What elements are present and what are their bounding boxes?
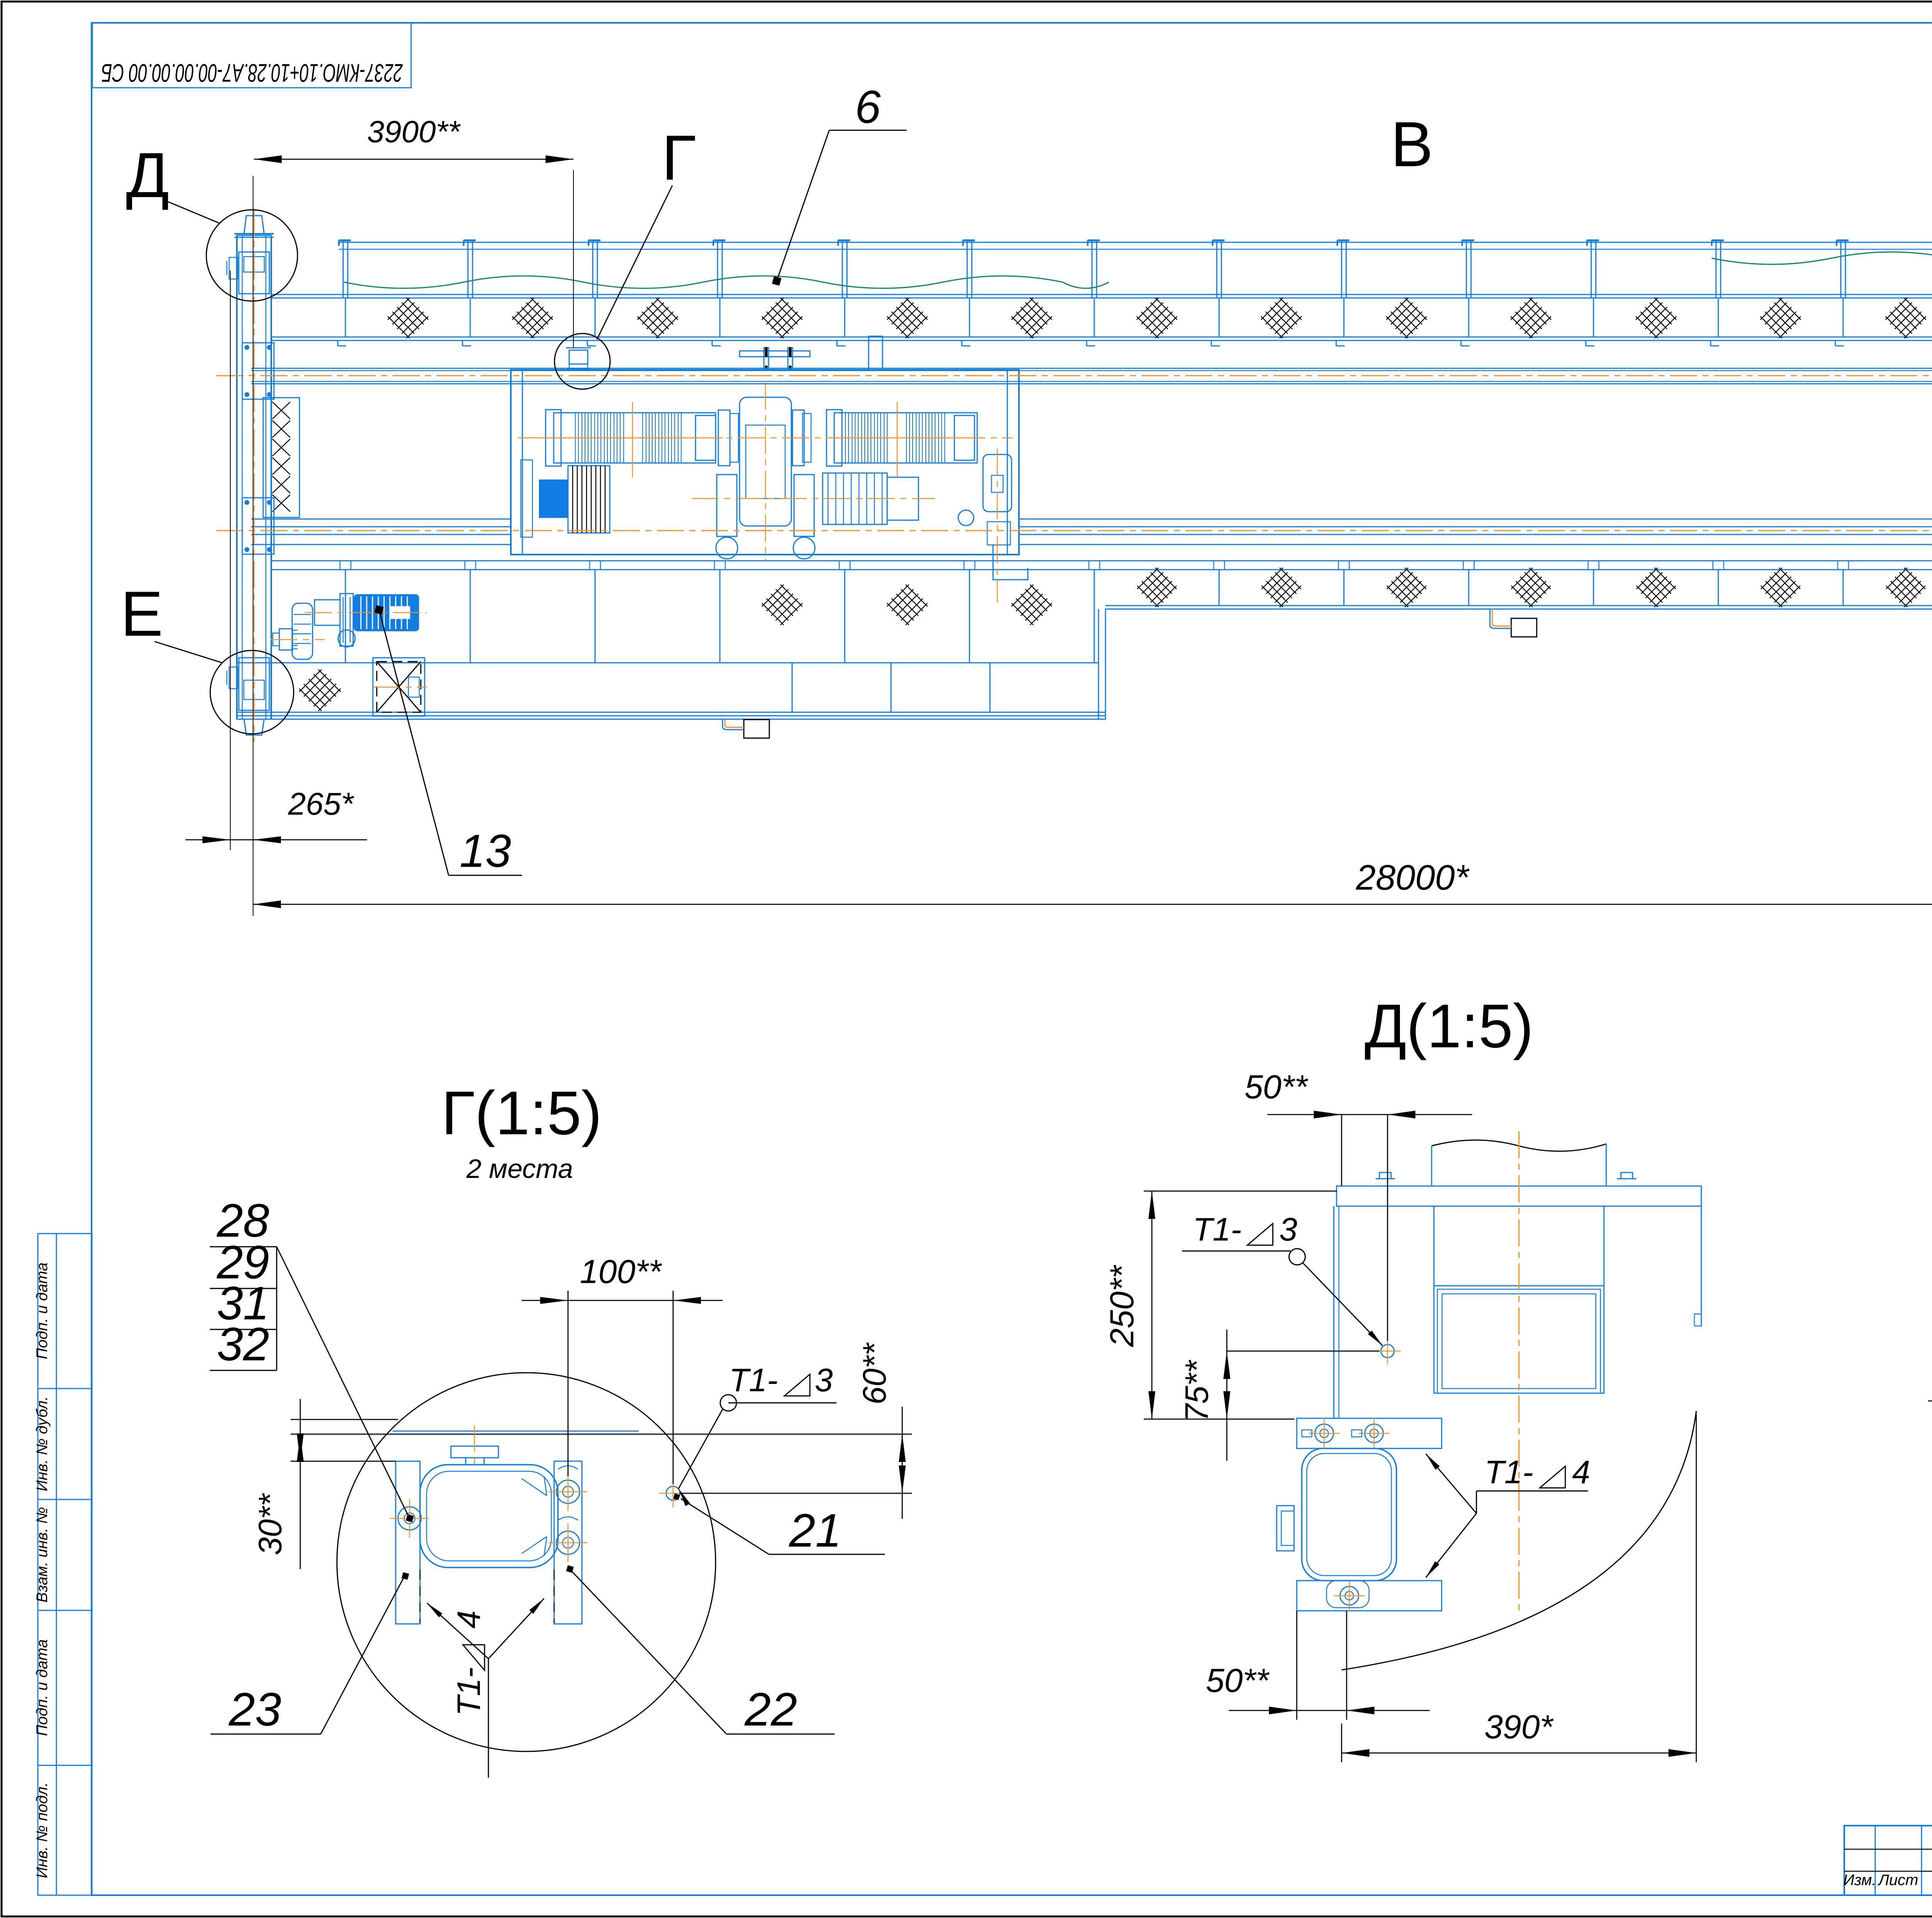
svg-text:Г(1:5): Г(1:5) — [441, 1078, 602, 1147]
svg-text:22: 22 — [744, 1683, 797, 1736]
svg-text:265*: 265* — [288, 786, 355, 822]
svg-text:2 места: 2 места — [466, 1154, 573, 1184]
svg-text:3: 3 — [1279, 1211, 1298, 1247]
svg-text:60**: 60** — [856, 1342, 893, 1404]
svg-text:Г: Г — [662, 122, 696, 193]
svg-text:Взам. инв. №: Взам. инв. № — [34, 1507, 51, 1602]
svg-text:Т1-: Т1- — [729, 1362, 778, 1398]
svg-text:28000*: 28000* — [1355, 858, 1470, 897]
svg-text:Изм.: Изм. — [1843, 1872, 1876, 1889]
svg-text:Д(1:5): Д(1:5) — [1364, 991, 1533, 1060]
svg-text:Подп. и дата: Подп. и дата — [34, 1639, 51, 1736]
svg-text:Т1-: Т1- — [451, 1667, 487, 1716]
svg-text:50**: 50** — [1206, 1662, 1270, 1699]
svg-text:100**: 100** — [580, 1253, 662, 1290]
svg-text:50**: 50** — [1245, 1069, 1308, 1106]
svg-text:2237-КМО.10+10.28.А7-00.00.00.: 2237-КМО.10+10.28.А7-00.00.00.00 СБ — [101, 59, 403, 87]
svg-text:6: 6 — [855, 81, 881, 133]
svg-text:13: 13 — [459, 825, 511, 877]
svg-text:Е: Е — [121, 578, 163, 649]
svg-text:4: 4 — [1572, 1454, 1590, 1490]
svg-text:Д: Д — [126, 140, 169, 211]
svg-text:Подп. и дата: Подп. и дата — [34, 1263, 51, 1359]
svg-text:Лист: Лист — [1878, 1872, 1918, 1889]
svg-text:30**: 30** — [252, 1493, 288, 1555]
svg-text:75**: 75** — [1179, 1360, 1215, 1422]
svg-text:4: 4 — [451, 1610, 487, 1629]
svg-text:23: 23 — [228, 1683, 281, 1736]
svg-text:3900**: 3900** — [367, 114, 461, 149]
svg-text:390*: 390* — [1485, 1709, 1554, 1746]
svg-text:В: В — [1391, 109, 1433, 180]
svg-text:Т1-: Т1- — [1485, 1454, 1533, 1490]
svg-text:Инв. № подл.: Инв. № подл. — [34, 1782, 51, 1878]
svg-text:32: 32 — [217, 1318, 269, 1370]
svg-text:3: 3 — [815, 1362, 833, 1398]
svg-text:250**: 250** — [1104, 1264, 1141, 1347]
svg-text:21: 21 — [789, 1504, 842, 1557]
svg-text:Инв. № дубл.: Инв. № дубл. — [34, 1396, 51, 1491]
svg-text:Т1-: Т1- — [1193, 1211, 1242, 1247]
